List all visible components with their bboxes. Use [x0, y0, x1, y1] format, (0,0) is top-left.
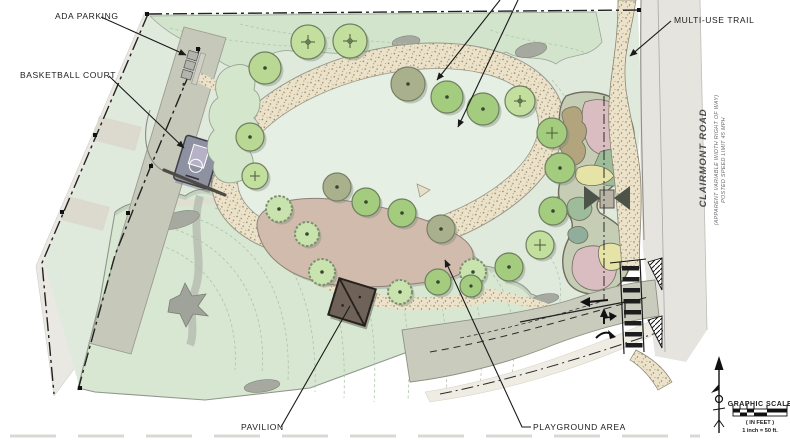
site-plan-drawing: ADA PARKING BASKETBALL COURT MULTI-USE T…	[0, 0, 790, 440]
label-basketball-court: BASKETBALL COURT	[20, 70, 116, 80]
graphic-scale-ratio: 1 inch = 50 ft.	[742, 428, 778, 434]
label-clairmont-road-sub2: POSTED SPEED LIMIT 45 MPH	[721, 117, 727, 203]
label-multi-use-trail: MULTI-USE TRAIL	[674, 15, 754, 25]
label-pavilion: PAVILION	[241, 422, 284, 432]
label-clairmont-road: CLAIRMONT ROAD	[698, 109, 709, 208]
label-playground-area: PLAYGROUND AREA	[533, 422, 626, 432]
graphic-scale-title: GRAPHIC SCALE	[728, 401, 790, 408]
label-clairmont-road-sub1: (APPARENT VARIABLE WIDTH RIGHT OF WAY)	[714, 95, 720, 226]
graphic-scale-units: ( IN FEET )	[746, 420, 774, 426]
label-ada-parking: ADA PARKING	[55, 11, 119, 21]
site-plan-sheet: ADA PARKING BASKETBALL COURT MULTI-USE T…	[0, 0, 790, 440]
